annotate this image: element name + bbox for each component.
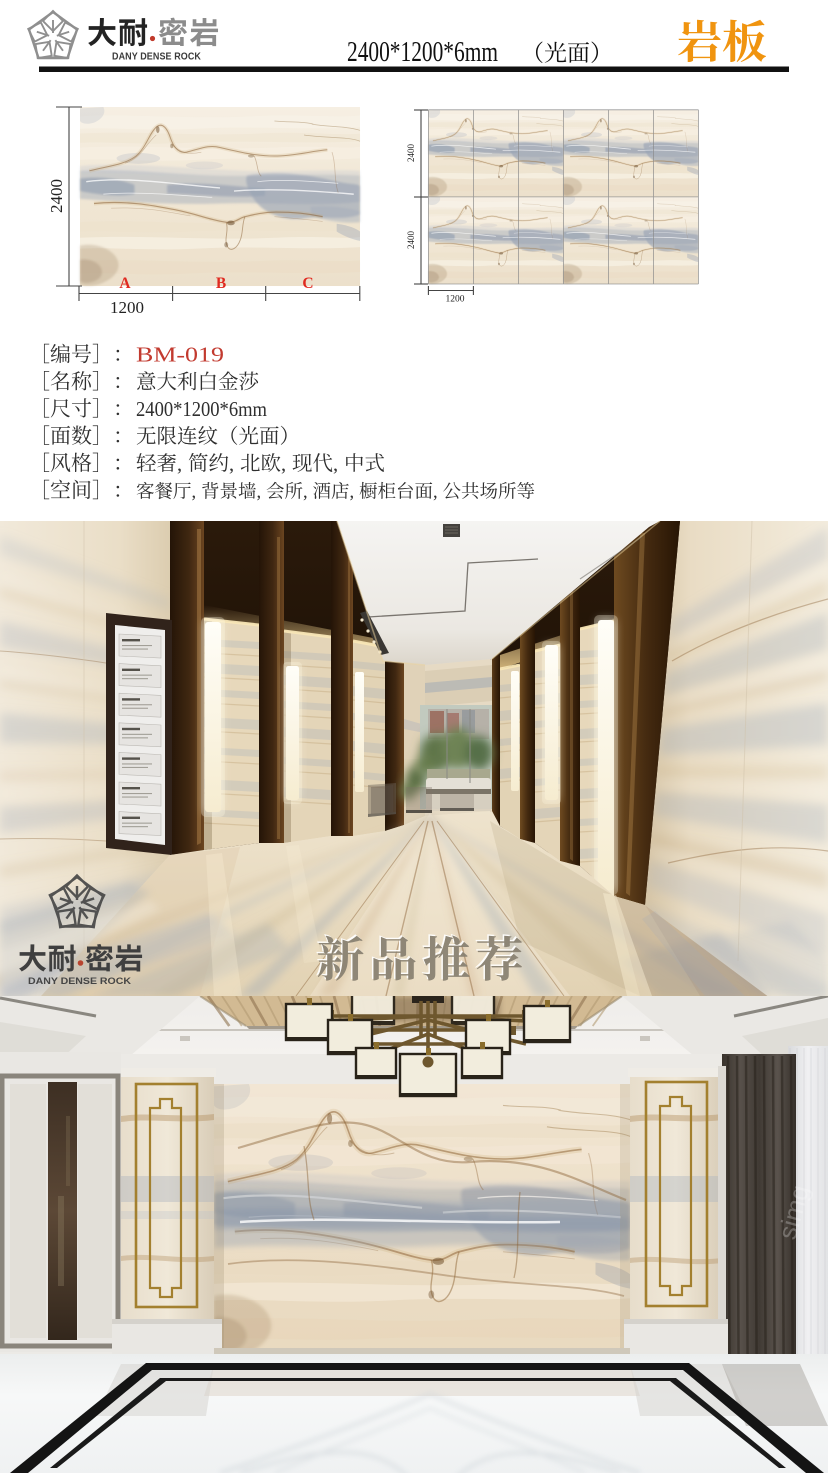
svg-text:DANY DENSE ROCK: DANY DENSE ROCK (28, 976, 131, 987)
svg-text:1200: 1200 (110, 298, 144, 317)
svg-text:,: , (333, 453, 338, 475)
svg-text:,: , (303, 483, 308, 503)
svg-text:BM-019: BM-019 (136, 343, 224, 367)
svg-text:2400*1200*6mm: 2400*1200*6mm (136, 397, 267, 421)
svg-text:,: , (192, 483, 197, 503)
svg-text:2400: 2400 (47, 179, 66, 213)
svg-text:,: , (257, 483, 262, 503)
svg-text:,: , (281, 453, 286, 475)
svg-text:A: A (119, 275, 131, 292)
svg-text:,: , (350, 483, 355, 503)
svg-text:2400: 2400 (406, 144, 416, 163)
svg-text:,: , (433, 483, 438, 503)
svg-text:B: B (216, 275, 226, 292)
svg-text:,: , (177, 453, 182, 475)
svg-text:2400: 2400 (406, 231, 416, 250)
svg-text:,: , (229, 453, 234, 475)
svg-text:1200: 1200 (446, 295, 465, 305)
svg-text:C: C (302, 275, 313, 292)
